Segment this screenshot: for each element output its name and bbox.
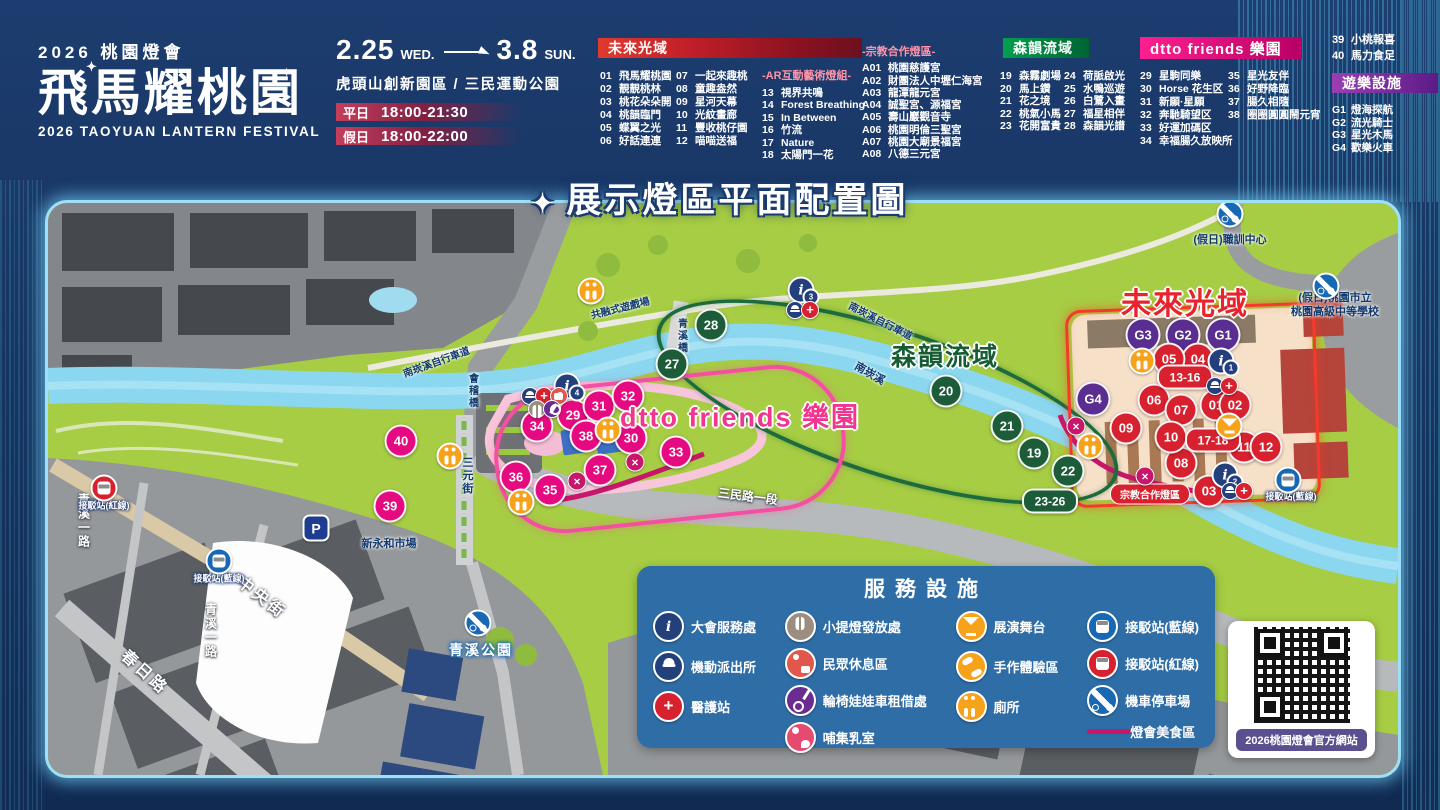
legend-item: 11豐收桃仔園: [676, 122, 748, 135]
legend-item: 36好野降臨: [1228, 83, 1321, 96]
legend-item: 31新願·星願: [1140, 96, 1233, 109]
map-marker-27: 27: [656, 348, 689, 381]
legend-item: 16竹流: [762, 124, 865, 137]
legend-item: 39小桃報喜: [1332, 33, 1395, 49]
service-item: 接駁站(紅線): [1087, 648, 1199, 679]
legend-item: A06桃園明倫三聖宮: [862, 124, 983, 136]
info-icon: [653, 611, 684, 642]
legend-item: 13視界共鳴: [762, 87, 865, 100]
map-marker-28: 28: [695, 309, 728, 342]
services-col-4: 接駁站(藍線)接駁站(紅線)機車停車場燈會美食區: [1087, 611, 1199, 753]
services-title: 服務設施: [637, 573, 1215, 603]
map-marker-09: 09: [1110, 412, 1143, 445]
map-marker-40: 40: [385, 425, 418, 458]
legend-item: G2流光騎士: [1332, 117, 1393, 130]
zone-title: 森韻流域: [891, 337, 999, 373]
date-range: 2.25 WED. 3.8 SUN.: [336, 34, 575, 66]
legend-item: 04桃韻臨門: [600, 109, 672, 122]
medical-icon: [801, 301, 819, 319]
xmark-icon: [568, 472, 587, 491]
service-label: 手作體驗區: [994, 657, 1059, 676]
bus-icon: [206, 548, 233, 575]
qr-caption: 2026桃園燈會官方網站: [1236, 729, 1367, 751]
legend-item: A01桃園慈護宮: [862, 62, 983, 74]
service-label: 展演舞台: [994, 617, 1046, 636]
bus-icon: [1087, 648, 1118, 679]
opening-hours: 平日18:00-21:30假日18:00-22:00: [336, 103, 575, 145]
stage-icon: [956, 611, 987, 642]
service-item: 燈會美食區: [1087, 722, 1199, 741]
service-label: 機動派出所: [691, 657, 756, 676]
legend-item: 08童趣盎然: [676, 83, 748, 96]
info-badge: 1: [1223, 360, 1240, 377]
map-marker-33: 33: [660, 436, 693, 469]
toilet-icon: [956, 691, 987, 722]
xmark-icon: [626, 453, 645, 472]
rest-icon: [785, 648, 816, 679]
logo-subtitle: 2026 TAOYUAN LANTERN FESTIVAL: [38, 124, 320, 139]
legend-item: 37腸久相隨: [1228, 96, 1321, 109]
moto-icon: [1087, 685, 1118, 716]
decor-streaks-left: [0, 180, 45, 810]
legend-item: 20馬上鑽: [1000, 83, 1061, 96]
map-title: ✦展示燈區平面配置圖: [0, 172, 1440, 223]
legend-item: 34幸福腸久放映所: [1140, 135, 1233, 148]
toilet-icon: [578, 278, 605, 305]
legend-banner-dtto: dtto friends 樂園: [1140, 37, 1302, 59]
map-marker-23-26: 23-26: [1022, 489, 1078, 514]
venue: 虎頭山創新園區 / 三民運動公園: [336, 73, 575, 94]
service-item: 展演舞台: [956, 611, 1059, 642]
legend-item: 24荷脈啟光: [1064, 70, 1125, 83]
map-label: 三民路一段: [717, 484, 779, 508]
map-marker-12: 12: [1250, 431, 1283, 464]
service-label: 接駁站(紅線): [1125, 654, 1199, 673]
map-label: 會稽橋: [465, 373, 480, 409]
bus-icon: [1275, 467, 1302, 494]
zone-title: 未來光域: [1121, 279, 1249, 323]
map-label: 青溪一路: [203, 603, 220, 659]
legend-item: 26白鷺入畫: [1064, 95, 1125, 108]
map-marker-19: 19: [1018, 437, 1051, 470]
legend-col-ar: -AR互動藝術燈組- 13視界共鳴14Forest Breathing15In …: [762, 70, 865, 162]
legend-item: A05壽山巖觀音寺: [862, 111, 983, 123]
service-item: 輪椅娃娃車租借處: [785, 685, 927, 716]
legend-item: 03桃花朵朵開: [600, 96, 672, 109]
map-label: 南崁溪自行車道: [401, 342, 472, 380]
service-item: 廁所: [956, 691, 1059, 722]
legend-head-religion: -宗教合作燈區-: [862, 46, 983, 58]
nursing-icon: [785, 722, 816, 753]
service-label: 醫護站: [691, 697, 730, 716]
stroller-icon: [785, 685, 816, 716]
map-marker-21: 21: [991, 410, 1024, 443]
police-icon: [653, 651, 684, 682]
legend-item: 01飛馬耀桃園: [600, 70, 672, 83]
logo-title: 飛馬耀桃園: [38, 63, 320, 124]
hours-row: 平日18:00-21:30: [336, 103, 529, 121]
map-marker-39: 39: [374, 490, 407, 523]
legend-item: 25水鴨巡遊: [1064, 83, 1125, 96]
legend-col-future-b: 07一起來趣桃08童趣盎然09星河天幕10光紋畫廊11豐收桃仔園12喵喵送福: [676, 70, 748, 148]
service-label: 輪椅娃娃車租借處: [823, 691, 927, 710]
legend-item: 15In Between: [762, 112, 865, 125]
service-item: 大會服務處: [653, 611, 756, 642]
start-day: WED.: [401, 47, 435, 62]
map-marker-22: 22: [1052, 455, 1085, 488]
service-item: 哺集乳室: [785, 722, 927, 753]
legend-item: G3星光木馬: [1332, 129, 1393, 142]
toilet-icon: [1077, 433, 1104, 460]
legend-item: 12喵喵送福: [676, 135, 748, 148]
map-marker-35: 35: [534, 474, 567, 507]
service-item: 醫護站: [653, 691, 756, 722]
map-label: 宗教合作燈區: [1110, 484, 1190, 505]
legend-col-dtto-a: 29星駒同樂30Horse 花生区31新願·星願32奔馳騎望区33好運加碼区34…: [1140, 70, 1233, 148]
services-legend: 服務設施 大會服務處機動派出所醫護站 小提燈發放處民眾休息區輪椅娃娃車租借處哺集…: [637, 566, 1215, 748]
legend-item: 09星河天幕: [676, 96, 748, 109]
xmark-icon: [1067, 417, 1086, 436]
qr-panel: 2026桃園燈會官方網站: [1228, 621, 1375, 758]
legend-item: A08八德三元宮: [862, 148, 983, 160]
qr-code: [1254, 627, 1350, 723]
date-arrow-icon: [444, 51, 486, 54]
legend-item: 28森韻光譜: [1064, 120, 1125, 133]
map-marker-10: 10: [1155, 421, 1188, 454]
service-label: 哺集乳室: [823, 728, 875, 747]
services-columns: 大會服務處機動派出所醫護站 小提燈發放處民眾休息區輪椅娃娃車租借處哺集乳室 展演…: [637, 603, 1215, 753]
legend-item: A03龍潭龍元宮: [862, 87, 983, 99]
legend-item: 35星光友伴: [1228, 70, 1321, 83]
service-label: 燈會美食區: [1130, 722, 1195, 741]
map-marker-G4: G4: [1076, 382, 1111, 417]
legend-item: 19森霧劇場: [1000, 70, 1061, 83]
legend-item: A07桃園大廟景福宮: [862, 136, 983, 148]
logo-year-line: 2026 桃園燈會: [38, 38, 320, 63]
legend-item: 38圈圈圓圓鬧元宵: [1228, 109, 1321, 122]
services-col-3: 展演舞台手作體驗區廁所: [956, 611, 1059, 753]
legend-item: 18太陽門一花: [762, 149, 865, 162]
service-item: 機動派出所: [653, 651, 756, 682]
legend-col-extra: 39小桃報喜40馬力食足: [1332, 33, 1395, 64]
services-col-1: 大會服務處機動派出所醫護站: [653, 611, 756, 753]
legend-col-religion: -宗教合作燈區- A01桃園慈護宮A02財團法人中壢仁海宮A03龍潭龍元宮A04…: [862, 46, 983, 161]
legend-item: 06好話連連: [600, 135, 672, 148]
service-label: 接駁站(藍線): [1125, 617, 1199, 636]
map-marker-13-16: 13-16: [1157, 365, 1213, 390]
legend-banner-future: 未來光域: [598, 38, 862, 58]
legend-col-dtto-b: 35星光友伴36好野降臨37腸久相隨38圈圈圓圓鬧元宵: [1228, 70, 1321, 122]
legend-item: 17Nature: [762, 137, 865, 150]
service-item: 小提燈發放處: [785, 611, 927, 642]
map-label: 新永和市場: [362, 535, 417, 551]
legend-head-ar: -AR互動藝術燈組-: [762, 70, 865, 83]
bus-icon: [1087, 611, 1118, 642]
legend-item: A04誠聖宮、源福宮: [862, 99, 983, 111]
map-label: 南崁溪自行車道: [846, 297, 915, 342]
medical-icon: [1220, 377, 1238, 395]
end-day: SUN.: [544, 47, 575, 62]
stage-icon: [1216, 413, 1243, 440]
end-date: 3.8: [496, 34, 538, 66]
legend-item: 40馬力食足: [1332, 49, 1395, 65]
legend-item: 10光紋畫廊: [676, 109, 748, 122]
toilet-icon: [595, 417, 622, 444]
date-info: 2.25 WED. 3.8 SUN. 虎頭山創新園區 / 三民運動公園 平日18…: [336, 34, 575, 151]
poster: 2026 桃園燈會 飛馬耀桃園 2026 TAOYUAN LANTERN FES…: [0, 0, 1440, 810]
qr-eye-icon: [1256, 693, 1284, 721]
legend-item: A02財團法人中壢仁海宮: [862, 75, 983, 87]
start-date: 2.25: [336, 34, 395, 66]
legend-item: 02靚靚桃林: [600, 83, 672, 96]
legend-item: 27福星相伴: [1064, 108, 1125, 121]
craft-icon: [956, 651, 987, 682]
service-item: 接駁站(藍線): [1087, 611, 1199, 642]
legend-item: 22桃氣小馬: [1000, 108, 1061, 121]
legend-item: 29星駒同樂: [1140, 70, 1233, 83]
service-label: 機車停車場: [1125, 691, 1190, 710]
parking-icon: [303, 515, 330, 542]
food-line-swatch: [1087, 729, 1131, 734]
info-badge: 4: [569, 385, 586, 402]
service-item: 民眾休息區: [785, 648, 927, 679]
toilet-icon: [1129, 348, 1156, 375]
legend-banner-forest: 森韻流域: [1003, 38, 1089, 58]
service-label: 民眾休息區: [823, 654, 888, 673]
map-label: 青溪公園: [449, 640, 513, 660]
zone-title: dtto friends 樂園: [620, 396, 860, 435]
legend-item: 30Horse 花生区: [1140, 83, 1233, 96]
legend-col-rides: G1燈海探航G2流光騎士G3星光木馬G4歡樂火車: [1332, 104, 1393, 154]
legend-col-forest-b: 24荷脈啟光25水鴨巡遊26白鷺入畫27福星相伴28森韻光譜: [1064, 70, 1125, 133]
festival-logo: 2026 桃園燈會 飛馬耀桃園 2026 TAOYUAN LANTERN FES…: [38, 38, 320, 139]
qr-eye-icon: [1256, 629, 1284, 657]
map-label: 桃園高級中等學校: [1291, 303, 1379, 319]
legend-item: 23花開富貴: [1000, 120, 1061, 133]
moto-icon: [1313, 273, 1340, 300]
medical-icon: [653, 691, 684, 722]
hours-row: 假日18:00-22:00: [336, 127, 529, 145]
legend-col-forest-a: 19森霧劇場20馬上鑽21花之境22桃氣小馬23花開富貴: [1000, 70, 1061, 133]
service-label: 大會服務處: [691, 617, 756, 636]
toilet-icon: [508, 489, 535, 516]
services-col-2: 小提燈發放處民眾休息區輪椅娃娃車租借處哺集乳室: [785, 611, 927, 753]
legend-item: 05蝶翼之光: [600, 122, 672, 135]
legend-item: 33好運加碼区: [1140, 122, 1233, 135]
map-label: 南崁溪: [852, 358, 889, 388]
legend-item: 21花之境: [1000, 95, 1061, 108]
legend-item: G1燈海探航: [1332, 104, 1393, 117]
qr-eye-icon: [1320, 629, 1348, 657]
map-label: (假日)職訓中心: [1193, 231, 1266, 247]
stroller-icon: [543, 400, 561, 418]
map-marker-37: 37: [584, 454, 617, 487]
legend-col-future-a: 01飛馬耀桃園02靚靚桃林03桃花朵朵開04桃韻臨門05蝶翼之光06好話連連: [600, 70, 672, 148]
bus-icon: [91, 475, 118, 502]
map-marker-20: 20: [930, 375, 963, 408]
legend-item: 14Forest Breathing: [762, 99, 865, 112]
legend-item: G4歡樂火車: [1332, 142, 1393, 155]
moto-icon: [465, 610, 492, 637]
decor-streaks-right-edge: [1402, 0, 1440, 810]
medical-icon: [1235, 482, 1253, 500]
service-item: 機車停車場: [1087, 685, 1199, 716]
lantern-icon: [785, 611, 816, 642]
info-icon: 3: [788, 277, 815, 304]
map-label: 春日路: [117, 643, 175, 699]
legend-item: 32奔馳騎望区: [1140, 109, 1233, 122]
map-title-text: 展示燈區平面配置圖: [566, 181, 908, 220]
service-label: 小提燈發放處: [823, 617, 901, 636]
info-icon: 1: [1208, 348, 1235, 375]
service-item: 手作體驗區: [956, 651, 1059, 682]
toilet-icon: [437, 443, 464, 470]
xmark-icon: [1136, 467, 1155, 486]
sparkle-icon: ✦: [532, 188, 557, 218]
legend-item: 07一起來趣桃: [676, 70, 748, 83]
legend-banner-rides: 遊樂設施: [1332, 73, 1438, 93]
service-label: 廁所: [994, 697, 1020, 716]
